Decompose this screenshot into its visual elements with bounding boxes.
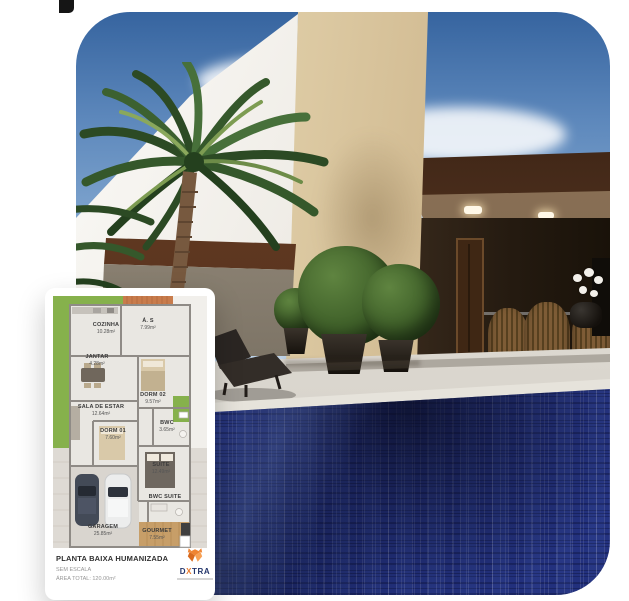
room-label-jantar: JANTAR 4.28m² (85, 354, 108, 368)
room-label-suite: SUITE 12.49m² (152, 462, 170, 476)
room-name: GOURMET (142, 528, 172, 535)
orchid-vase (570, 302, 602, 328)
floor-plan-drawing: COZINHA 10.28m² Á. S 7.99m² JANTAR 4.28m… (53, 296, 207, 548)
bush (362, 264, 440, 342)
wood-door (456, 238, 484, 358)
room-name: SALA DE ESTAR (78, 404, 124, 411)
room-name: Á. S (140, 318, 156, 325)
room-area: 9.57m² (140, 399, 166, 406)
room-label-as: Á. S 7.99m² (140, 318, 156, 332)
room-label-sala: SALA DE ESTAR 12.64m² (78, 404, 124, 418)
logo-tagline-bar (177, 578, 213, 580)
room-area: 12.64m² (78, 411, 124, 418)
room-label-dorm01: DORM 01 7.60m² (100, 428, 126, 442)
room-name: DORM 02 (140, 392, 166, 399)
room-area: 25.85m² (88, 531, 118, 538)
dxtra-logo: DXTRA (173, 548, 217, 580)
room-label-cozinha: COZINHA 10.28m² (93, 322, 119, 336)
plan-total-area: ÁREA TOTAL: 120.00m² (56, 576, 116, 582)
room-name: GARAGEM (88, 524, 118, 531)
room-area: 3.65m² (159, 427, 175, 434)
recessed-light (538, 212, 554, 219)
dxtra-logo-icon (186, 548, 204, 563)
room-area: 7.99m² (140, 325, 156, 332)
orchid-flower (579, 286, 587, 294)
room-area: 12.49m² (152, 469, 170, 476)
orchid-flower (594, 276, 603, 284)
plan-title: PLANTA BAIXA HUMANIZADA (56, 554, 168, 563)
floor-plan-card: COZINHA 10.28m² Á. S 7.99m² JANTAR 4.28m… (45, 288, 215, 600)
room-name: SUITE (152, 462, 170, 469)
room-name: JANTAR (85, 354, 108, 361)
room-label-garagem: GARAGEM 25.85m² (88, 524, 118, 538)
orchid-flower (590, 290, 598, 297)
room-label-bwc-suite: BWC SUITE (149, 494, 182, 501)
room-name: BWC SUITE (149, 494, 182, 501)
orchid-flower (573, 274, 582, 282)
room-label-dorm02: DORM 02 9.57m² (140, 392, 166, 406)
room-area: 4.28m² (85, 361, 108, 368)
recessed-light (464, 206, 482, 214)
room-area: 10.28m² (93, 329, 119, 336)
orchid-flower (584, 268, 594, 277)
room-label-bwc: BWC 3.65m² (159, 420, 175, 434)
room-area: 7.55m² (142, 535, 172, 542)
plan-scale-note: SEM ESCALA (56, 567, 91, 573)
room-name: COZINHA (93, 322, 119, 329)
room-area: 7.60m² (100, 435, 126, 442)
room-label-gourmet: GOURMET 7.55m² (142, 528, 172, 542)
room-name: DORM 01 (100, 428, 126, 435)
dxtra-logo-text: DXTRA (173, 568, 217, 576)
logo-letter: TRA (192, 567, 210, 576)
corner-fragment (59, 0, 74, 13)
floor-plan-svg (53, 296, 207, 548)
room-name: BWC (159, 420, 175, 427)
